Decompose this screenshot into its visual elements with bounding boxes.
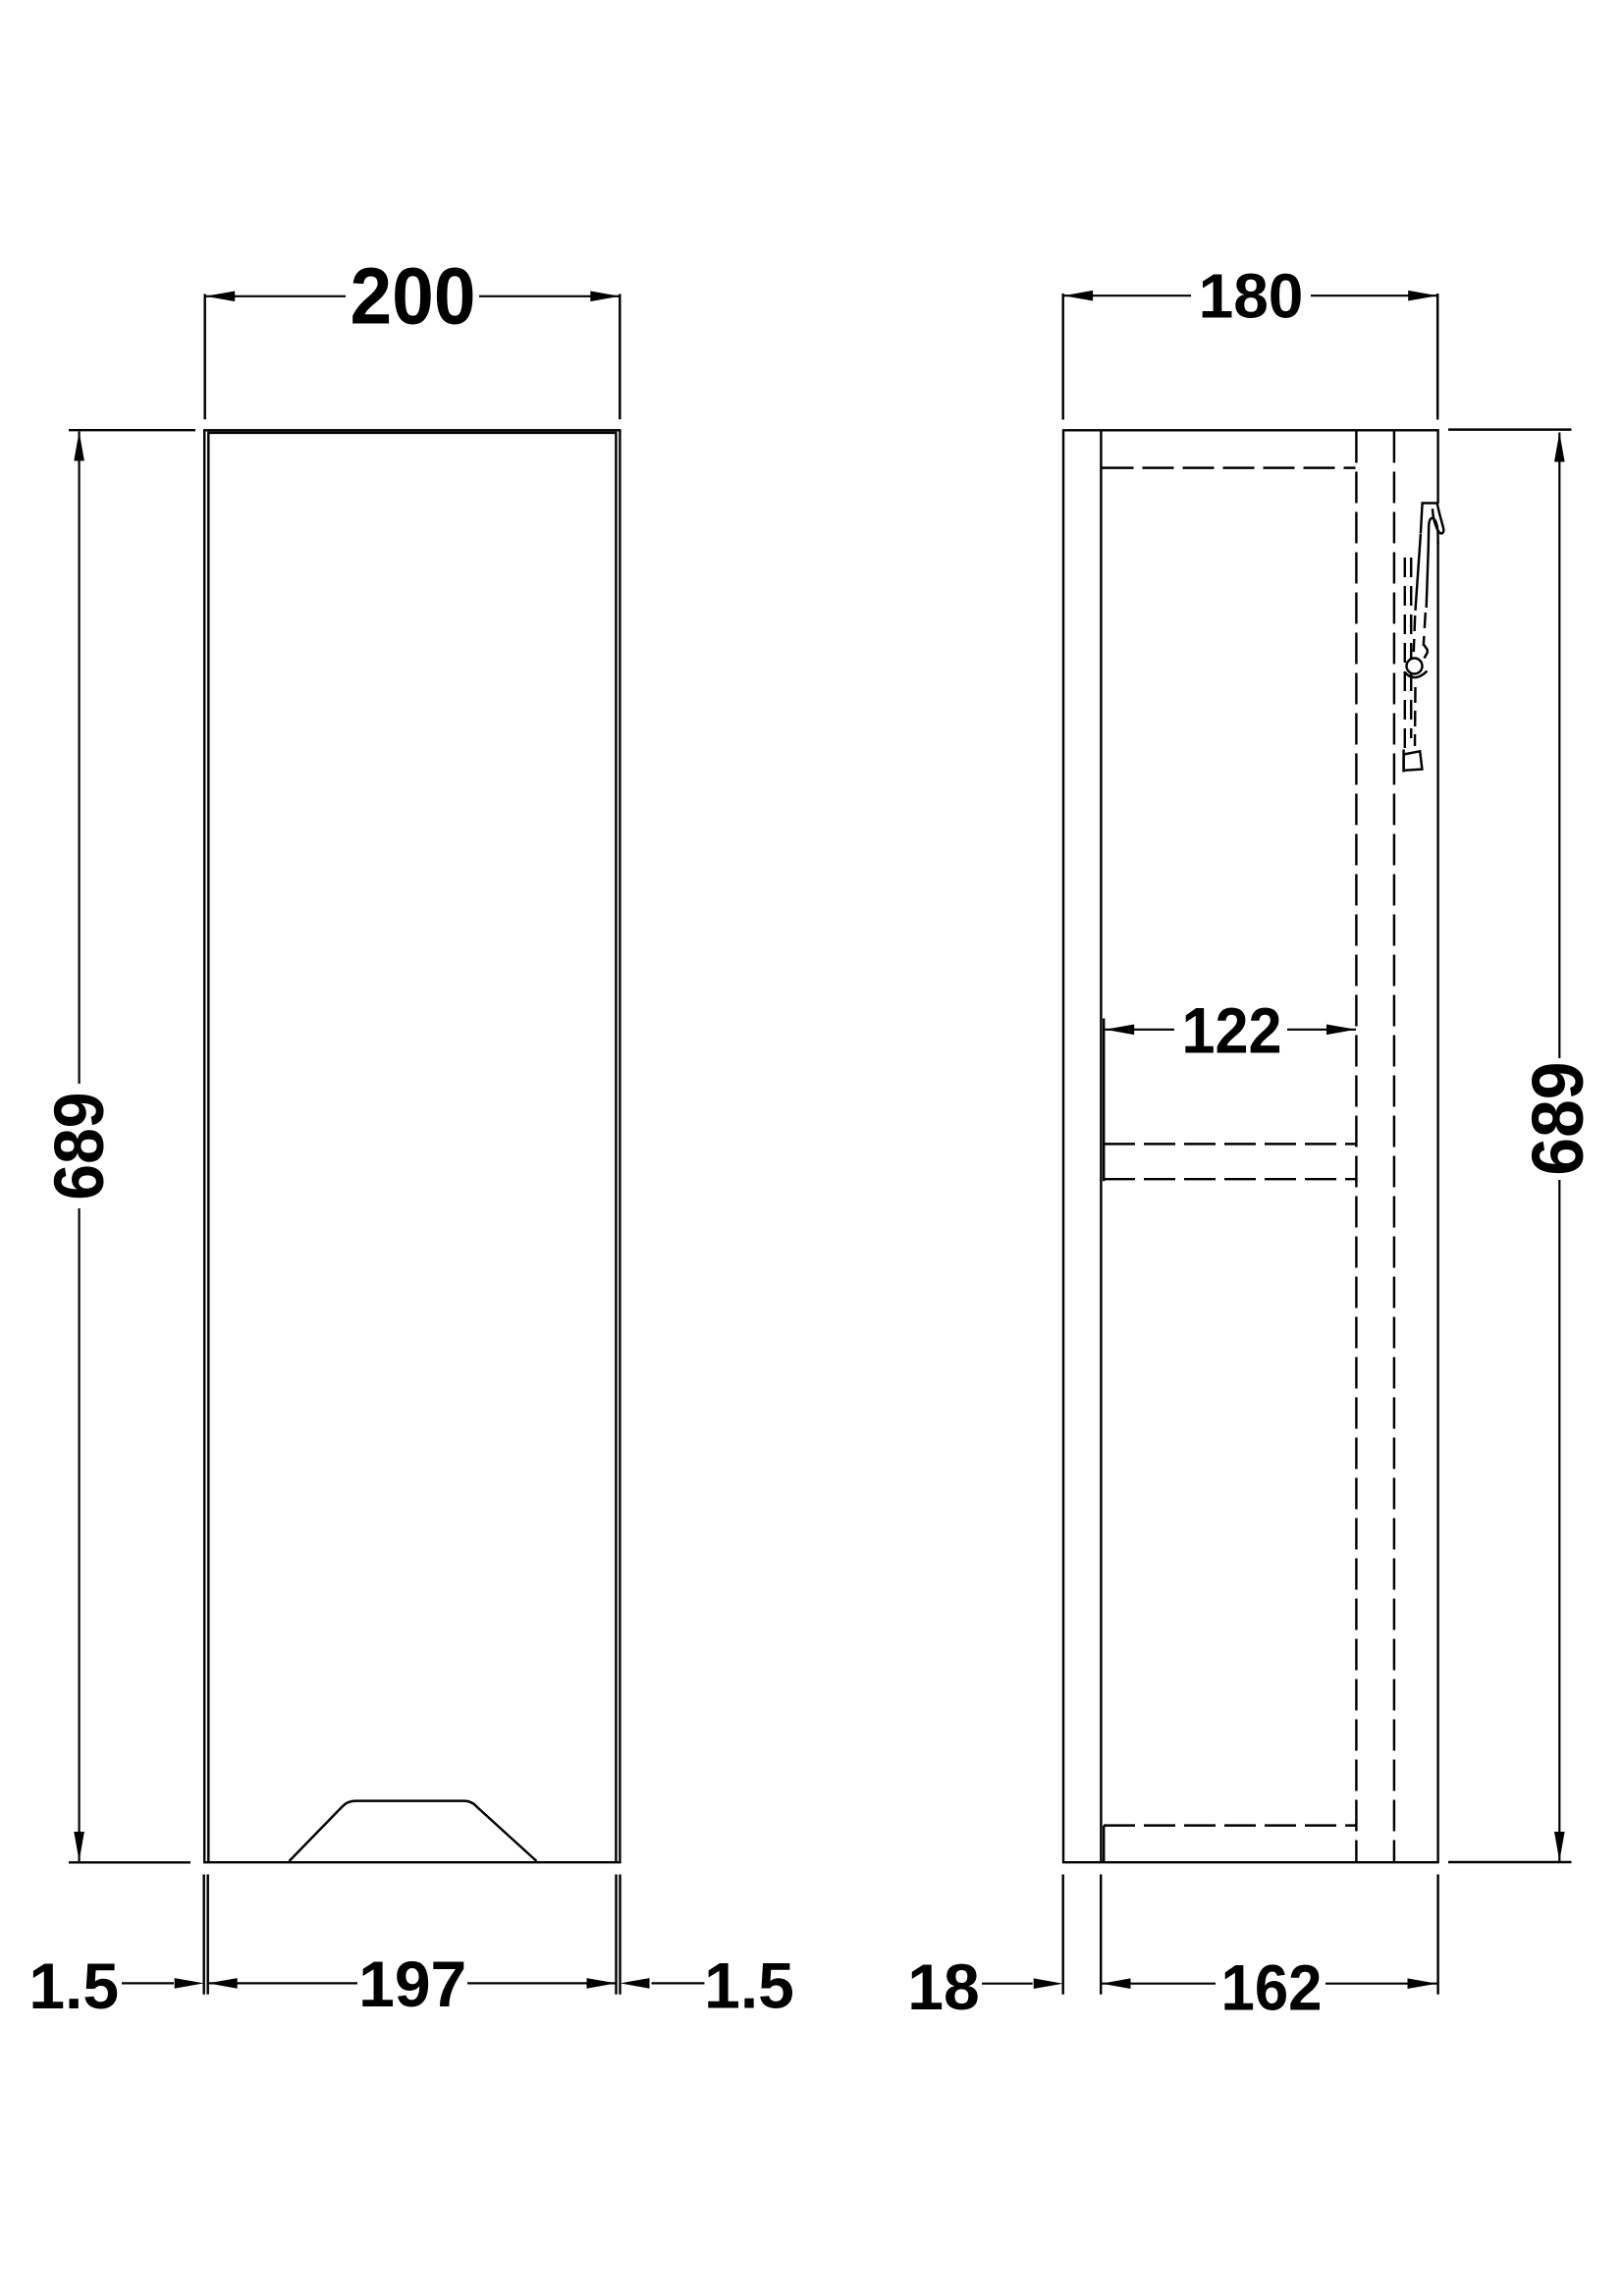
svg-text:200: 200 (351, 252, 476, 342)
svg-text:1.5: 1.5 (28, 1949, 119, 2022)
svg-text:18: 18 (907, 1950, 979, 2023)
svg-text:180: 180 (1199, 261, 1304, 332)
svg-text:122: 122 (1182, 994, 1282, 1067)
svg-text:689: 689 (41, 1093, 119, 1201)
svg-text:162: 162 (1221, 1950, 1323, 2023)
svg-text:689: 689 (1517, 1062, 1598, 1176)
svg-text:197: 197 (358, 1948, 466, 2020)
svg-text:1.5: 1.5 (704, 1949, 794, 2022)
